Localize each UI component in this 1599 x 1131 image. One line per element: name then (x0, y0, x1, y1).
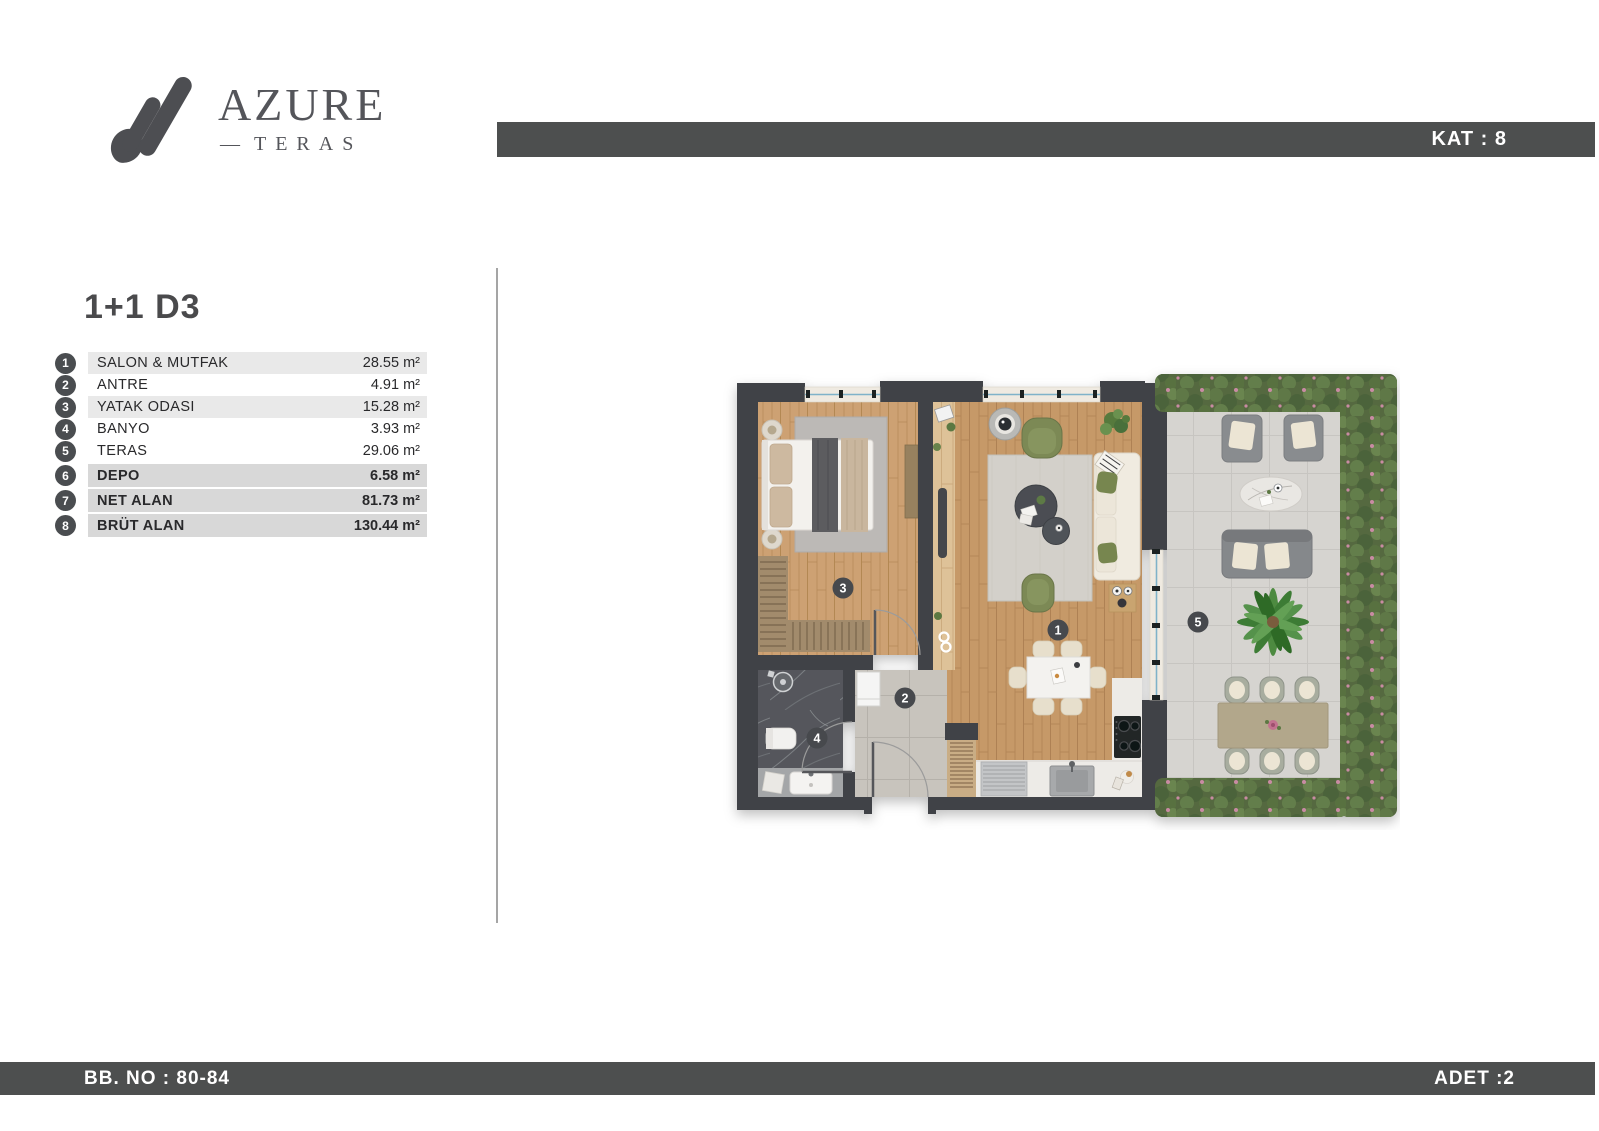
row-band: DEPO 6.58 m² (88, 464, 427, 487)
room-label: SALON & MUTFAK (97, 355, 228, 371)
brand-tagline: TERAS (254, 134, 362, 154)
row-band: SALON & MUTFAK 28.55 m² (88, 352, 427, 374)
terrace-dining-set (1218, 677, 1328, 774)
table-row: 6 DEPO 6.58 m² (55, 464, 427, 487)
room-label: TERAS (97, 443, 147, 459)
room-area: 6.58 m² (370, 468, 420, 484)
room-area: 15.28 m² (363, 399, 420, 415)
floor-plan: 1 2 3 4 (700, 360, 1400, 830)
room-area: 4.91 m² (371, 377, 420, 393)
room-area: 29.06 m² (363, 443, 420, 459)
potted-plant (933, 443, 941, 451)
badge-antre: 2 (895, 688, 916, 709)
room-label: NET ALAN (97, 493, 173, 509)
kitchen-sink (1050, 761, 1094, 796)
dark-throw-blanket (812, 438, 838, 532)
brand-logo: AZURE — TERAS (106, 70, 386, 166)
dining-chair (1009, 667, 1026, 688)
room-area-table: 1 SALON & MUTFAK 28.55 m² 2 ANTRE 4.91 m… (55, 352, 427, 537)
row-band: ANTRE 4.91 m² (88, 374, 427, 396)
brand-logo-icon (106, 70, 198, 166)
brand-dash: — (220, 134, 240, 154)
badge-banyo: 4 (807, 728, 828, 749)
vertical-divider (496, 268, 498, 923)
table-row: 8 BRÜT ALAN 130.44 m² (55, 514, 427, 537)
block-number-label: BB. NO : 80-84 (84, 1068, 230, 1090)
badge-salon: 1 (1048, 620, 1069, 641)
brand-tagline-row: — TERAS (218, 134, 386, 154)
pillow (770, 444, 792, 484)
room-area: 81.73 m² (362, 493, 420, 509)
room-number-badge: 8 (55, 515, 76, 536)
stove (1114, 716, 1141, 758)
bath-mat (762, 772, 784, 794)
brand-logo-text: AZURE — TERAS (218, 82, 386, 154)
terrace: 5 (1155, 374, 1397, 817)
room-number-badge: 7 (55, 490, 76, 511)
table-row: 4 BANYO 3.93 m² (55, 418, 427, 440)
table-row: 2 ANTRE 4.91 m² (55, 374, 427, 396)
entry-hall (857, 672, 880, 706)
storage-unit (947, 738, 976, 797)
svg-text:1: 1 (1055, 624, 1062, 638)
dining-chair (1033, 698, 1054, 715)
green-pillow (1096, 471, 1119, 495)
brand-name: AZURE (218, 82, 386, 128)
room-number-badge: 4 (55, 419, 76, 440)
svg-text:2: 2 (902, 692, 909, 706)
badge-teras: 5 (1188, 612, 1209, 633)
side-table (1109, 584, 1136, 612)
room-label: DEPO (97, 468, 140, 484)
dining-chair (1089, 667, 1106, 688)
row-band: BRÜT ALAN 130.44 m² (88, 514, 427, 537)
bedroom-window (805, 387, 880, 402)
room-number-badge: 3 (55, 397, 76, 418)
unit-count-label: ADET :2 (1434, 1068, 1515, 1090)
apartment: 1 2 3 4 (737, 381, 1167, 814)
footer-bar: BB. NO : 80-84 ADET :2 (0, 1062, 1595, 1095)
sliding-door-panel (938, 488, 947, 558)
svg-text:4: 4 (814, 732, 821, 746)
room-area: 3.93 m² (371, 421, 420, 437)
counter-module (981, 762, 1027, 796)
dining-chair (1061, 641, 1082, 658)
room-number-badge: 2 (55, 375, 76, 396)
potted-plant (947, 423, 956, 432)
armchair-bottom (1022, 574, 1054, 612)
room-number-badge: 1 (55, 353, 76, 374)
appliance-cabinet (857, 672, 880, 706)
room-label: BANYO (97, 421, 150, 437)
row-band: TERAS 29.06 m² (88, 440, 427, 462)
terrace-sofa (1222, 530, 1312, 578)
sofa (1094, 451, 1140, 580)
potted-plant (934, 612, 942, 620)
room-label: BRÜT ALAN (97, 518, 185, 534)
brochure-page: AZURE — TERAS KAT : 8 1+1 D3 1 SALON & M… (0, 0, 1599, 1131)
floor-number-label: KAT : 8 (1431, 128, 1507, 151)
pillow (770, 487, 792, 527)
row-band: NET ALAN 81.73 m² (88, 489, 427, 512)
unit-title: 1+1 D3 (84, 288, 201, 327)
dining-chair (1033, 641, 1054, 658)
green-pillow (1097, 542, 1118, 564)
table-row: 5 TERAS 29.06 m² (55, 440, 427, 462)
table-row: 1 SALON & MUTFAK 28.55 m² (55, 352, 427, 374)
bed (762, 438, 873, 532)
room-area: 28.55 m² (363, 355, 420, 371)
row-band: YATAK ODASI 15.28 m² (88, 396, 427, 418)
badge-yatak-odasi: 3 (833, 578, 854, 599)
terrace-oval-table (1240, 477, 1302, 511)
terrace-window (1150, 549, 1163, 700)
svg-text:3: 3 (840, 582, 847, 596)
room-label: ANTRE (97, 377, 148, 393)
room-number-badge: 5 (55, 441, 76, 462)
svg-text:5: 5 (1195, 616, 1202, 630)
table-row: 7 NET ALAN 81.73 m² (55, 489, 427, 512)
room-number-badge: 6 (55, 465, 76, 486)
table-row: 3 YATAK ODASI 15.28 m² (55, 396, 427, 418)
dining-chair (1061, 698, 1082, 715)
bedroom-cabinet (905, 445, 918, 518)
room-label: YATAK ODASI (97, 399, 195, 415)
row-band: BANYO 3.93 m² (88, 418, 427, 440)
room-area: 130.44 m² (354, 518, 420, 534)
living-window (983, 387, 1100, 402)
floor-number-bar: KAT : 8 (497, 122, 1595, 157)
armchair-top (1022, 418, 1062, 458)
